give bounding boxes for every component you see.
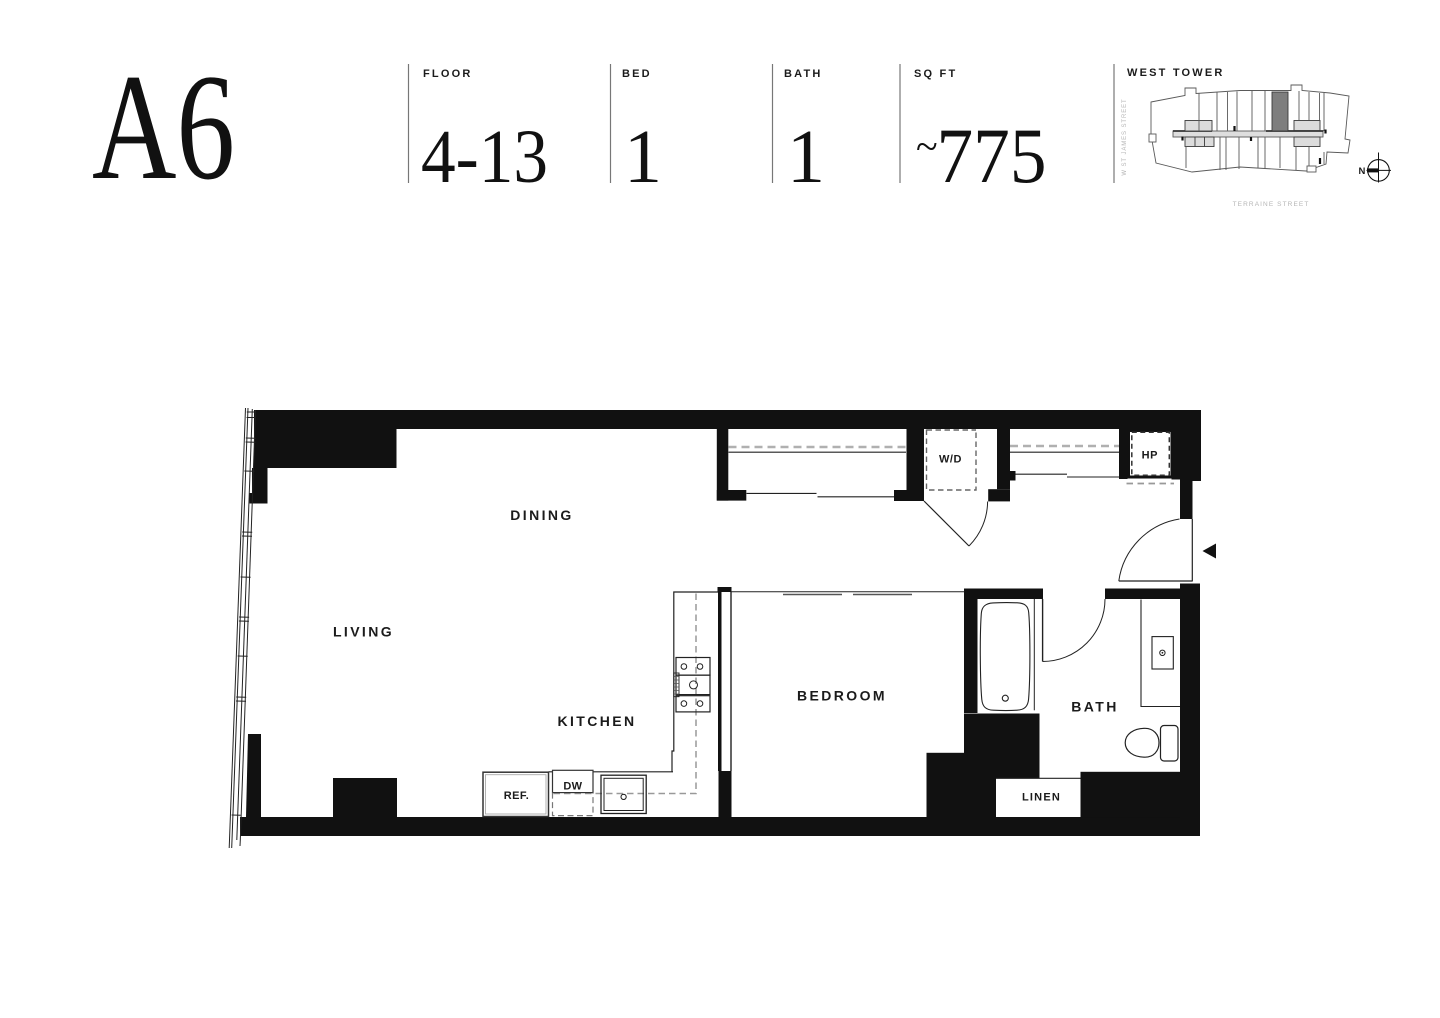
svg-text:4-13: 4-13 [421,115,548,199]
svg-text:BED: BED [622,68,652,80]
svg-text:LIVING: LIVING [333,624,394,640]
svg-text:TERRAINE STREET: TERRAINE STREET [1233,201,1310,208]
svg-text:A6: A6 [92,43,235,211]
svg-text:W ST JAMES STREET: W ST JAMES STREET [1122,98,1128,175]
svg-text:SQ FT: SQ FT [914,68,957,80]
svg-text:HP: HP [1142,450,1158,462]
svg-text:W/D: W/D [939,454,962,466]
svg-text:BATH: BATH [784,68,823,80]
svg-text:REF.: REF. [504,790,529,802]
svg-text:WEST TOWER: WEST TOWER [1127,67,1225,79]
svg-text:~: ~ [916,124,938,169]
svg-text:1: 1 [624,115,662,199]
svg-text:DINING: DINING [510,507,573,523]
svg-text:DW: DW [563,781,582,793]
svg-text:KITCHEN: KITCHEN [557,713,636,729]
svg-text:FLOOR: FLOOR [423,68,473,80]
svg-text:N: N [1359,166,1366,177]
svg-text:775: 775 [937,112,1047,199]
svg-text:LINEN: LINEN [1022,792,1061,804]
svg-text:BATH: BATH [1071,699,1118,715]
svg-text:BEDROOM: BEDROOM [797,688,887,704]
svg-text:1: 1 [787,115,825,199]
